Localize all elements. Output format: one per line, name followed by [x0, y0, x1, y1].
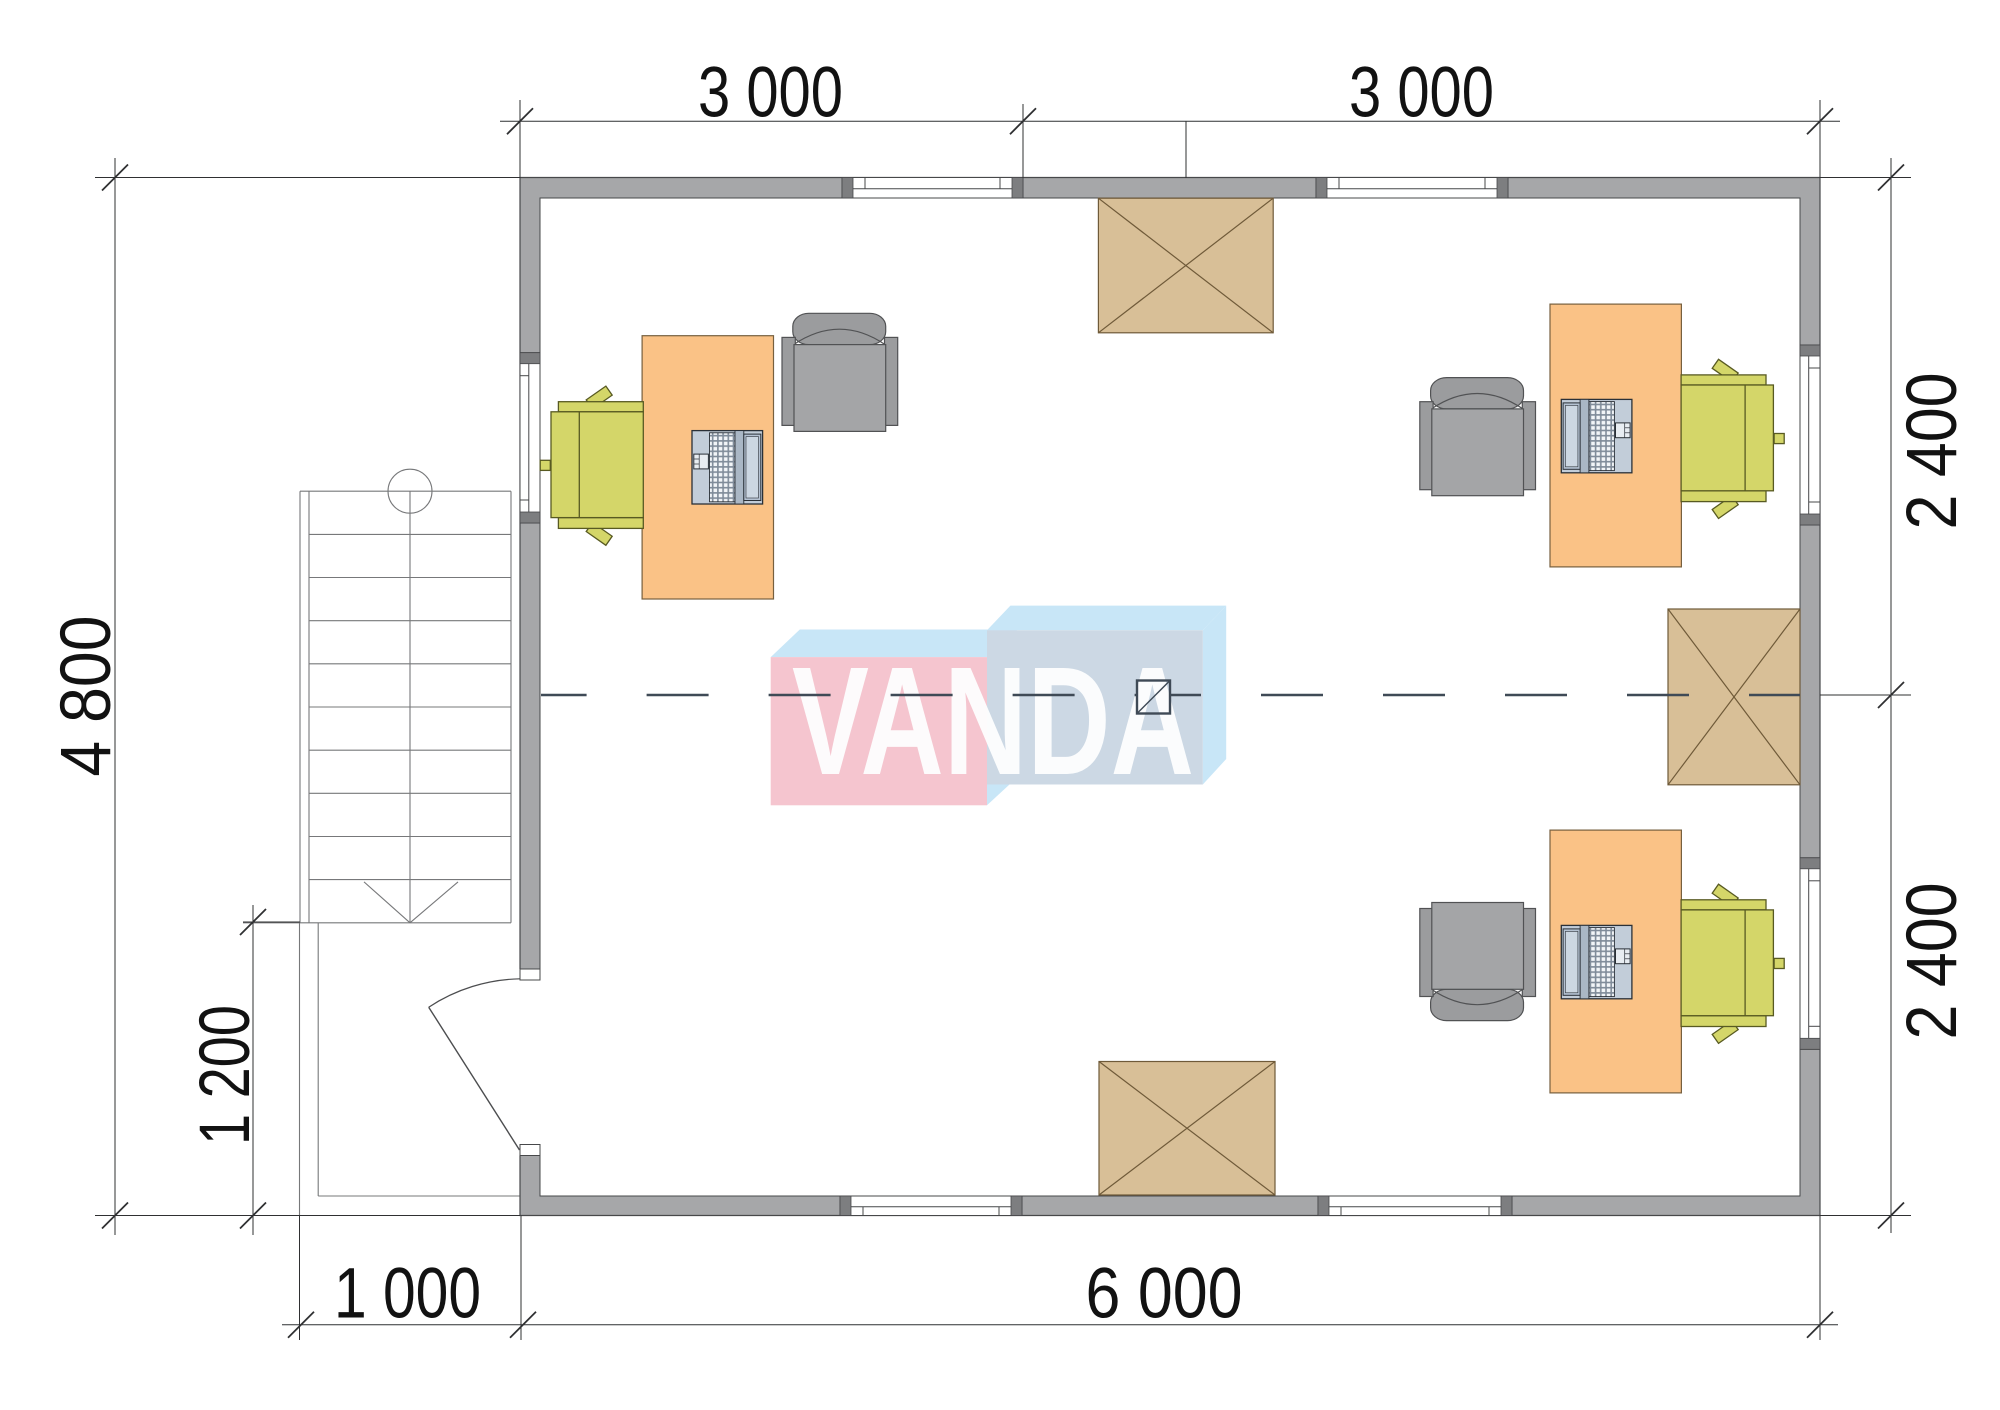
svg-text:1 200: 1 200: [185, 1005, 265, 1145]
svg-text:2 400: 2 400: [1892, 882, 1971, 1039]
svg-text:2 400: 2 400: [1892, 372, 1971, 529]
svg-text:VANDA: VANDA: [792, 635, 1194, 807]
svg-text:4 800: 4 800: [47, 615, 126, 776]
svg-text:3 000: 3 000: [698, 52, 843, 132]
svg-text:6 000: 6 000: [1085, 1254, 1242, 1333]
svg-text:3 000: 3 000: [1349, 52, 1494, 132]
svg-text:1 000: 1 000: [334, 1253, 481, 1333]
